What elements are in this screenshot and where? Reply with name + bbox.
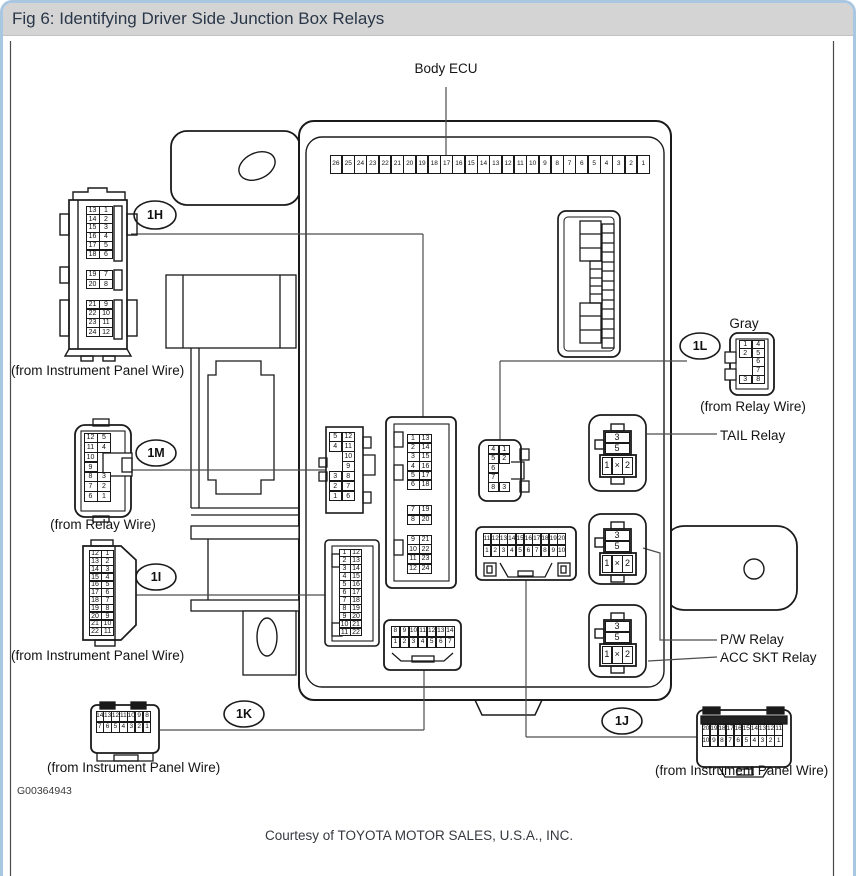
label-from-relay-wire-right: (from Relay Wire) bbox=[693, 399, 813, 414]
mounting-tab-bottom bbox=[475, 700, 542, 715]
pw-relay-pins-bottom: 1×2 bbox=[602, 555, 633, 573]
label-from-instrument-1j: (from Instrument Panel Wire) bbox=[655, 763, 827, 778]
badge-1i: 1I bbox=[135, 570, 177, 584]
badge-1k: 1K bbox=[223, 707, 265, 721]
mounting-tab-right bbox=[664, 526, 797, 610]
acc-skt-relay-pins-top: 35 bbox=[605, 621, 630, 643]
tail-relay-pins-top: 35 bbox=[605, 432, 630, 454]
badge-1j: 1J bbox=[601, 714, 643, 728]
label-from-relay-wire-left: (from Relay Wire) bbox=[43, 517, 163, 532]
receptacle-1h-pins-a: 113214315416517618 bbox=[407, 434, 432, 490]
connector-gray-plug-pins: 14256738 bbox=[739, 340, 765, 384]
receptacle-1h-pins-b: 719820 bbox=[407, 505, 432, 525]
connector-1h-plug-pins-a: 131142153164175186 bbox=[86, 206, 113, 259]
ecu-pin-strip: 2625242322212019181716151413121110987654… bbox=[330, 155, 650, 174]
badge-1m: 1M bbox=[135, 446, 177, 460]
badge-1h: 1H bbox=[134, 208, 176, 222]
figure-callout: Fig 6: Identifying Driver Side Junction … bbox=[0, 0, 856, 876]
courtesy-line: Courtesy of TOYOTA MOTOR SALES, U.S.A., … bbox=[265, 828, 573, 843]
tail-relay-pins-bottom: 1×2 bbox=[602, 457, 633, 475]
receptacle-1k-pins: 8910111213141234567 bbox=[391, 626, 455, 648]
acc-skt-relay-pins-bottom: 1×2 bbox=[602, 646, 633, 664]
label-from-instrument-1i: (from Instrument Panel Wire) bbox=[11, 648, 183, 663]
receptacle-1i-pins: 11221331441551661771881992010211122 bbox=[339, 549, 362, 636]
badge-1l: 1L bbox=[679, 339, 721, 353]
label-from-instrument-1k: (from Instrument Panel Wire) bbox=[47, 760, 219, 775]
label-tail-relay: TAIL Relay bbox=[720, 428, 785, 443]
connector-1k-plug-pins: 1413121110987654321 bbox=[96, 711, 151, 733]
label-body-ecu: Body ECU bbox=[396, 61, 496, 76]
pw-relay-pins-top: 35 bbox=[605, 530, 630, 552]
label-pw-relay: P/W Relay bbox=[720, 632, 784, 647]
receptacle-1h-pins-c: 921102211231224 bbox=[407, 535, 432, 574]
receptacle-1l-pins: 41526783 bbox=[488, 445, 510, 492]
connector-1h-plug-pins-c: 219221023112412 bbox=[86, 300, 113, 337]
left-side-brackets bbox=[166, 275, 299, 675]
mounting-tab-top-left bbox=[171, 131, 300, 205]
label-from-instrument-1h: (from Instrument Panel Wire) bbox=[11, 363, 183, 378]
connector-1j-plug-pins: 2019181716151413121110987654321 bbox=[702, 724, 783, 747]
figure-code: G00364943 bbox=[17, 785, 72, 797]
receptacle-1j-pins: 1112131415161718192012345678910 bbox=[483, 533, 566, 557]
connector-1m-plug-pins: 125114109837261 bbox=[84, 433, 111, 502]
label-gray: Gray bbox=[694, 316, 794, 331]
connector-1i-plug-pins: 12113214315416517618719820921102211 bbox=[89, 550, 114, 636]
label-acc-skt-relay: ACC SKT Relay bbox=[720, 650, 817, 665]
receptacle-1m-pins: 512411109382716 bbox=[329, 432, 355, 501]
connector-1h-plug-pins-b: 197208 bbox=[86, 270, 113, 289]
